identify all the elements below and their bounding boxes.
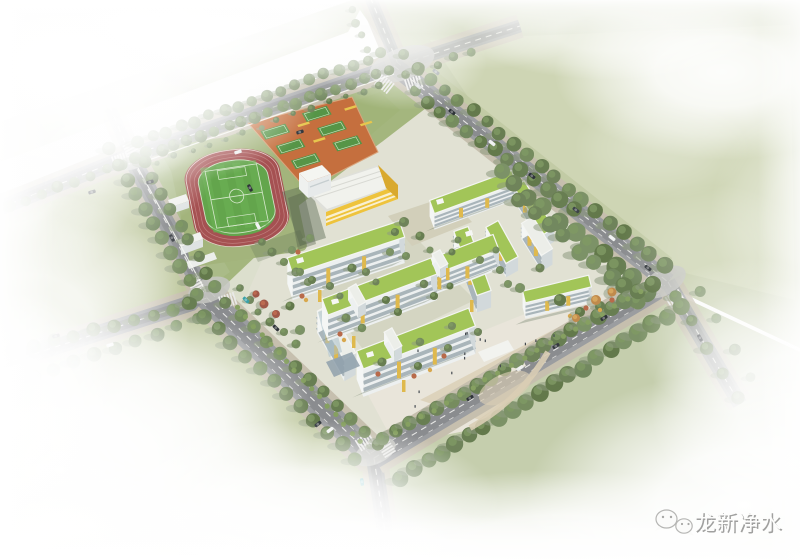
- svg-text:龙新净水: 龙新净水: [694, 511, 782, 535]
